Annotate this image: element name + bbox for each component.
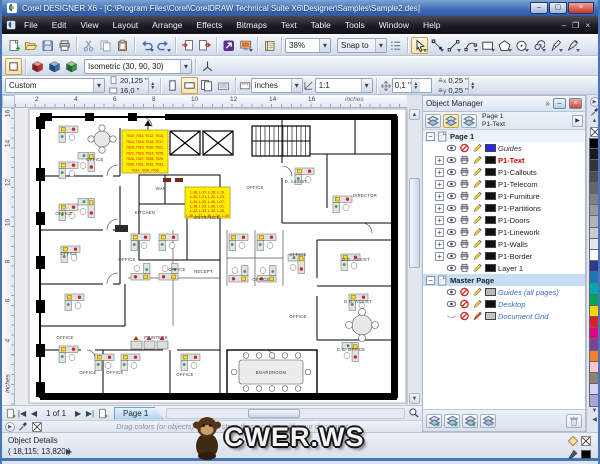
layer-row[interactable]: +P1-Walls (423, 238, 585, 250)
toolbar-separator (76, 37, 77, 53)
visibility-eye-icon[interactable] (446, 191, 457, 201)
palette-expand[interactable]: ◀ (592, 416, 597, 425)
layer-label: P1-Linework (498, 228, 540, 237)
expand-toggle[interactable]: + (435, 228, 444, 237)
layer-row[interactable]: −Page 1 (423, 130, 585, 142)
docker-minimize-button[interactable]: – (553, 98, 566, 109)
visibility-eye-icon[interactable] (446, 287, 457, 297)
color-swatch[interactable] (589, 138, 600, 149)
first-page-button[interactable]: |◀ (16, 407, 28, 419)
visibility-eye-icon[interactable] (446, 155, 457, 165)
layer-row[interactable]: +P1-Furniture (423, 190, 585, 202)
layer-row[interactable]: +P1-Partitions (423, 202, 585, 214)
non-printable-icon[interactable] (459, 287, 470, 297)
printable-icon[interactable] (459, 167, 470, 177)
menu-edit[interactable]: Edit (45, 18, 74, 32)
printable-icon[interactable] (459, 263, 470, 273)
palette-scroll-down[interactable]: ▼ (592, 407, 598, 416)
color-swatch[interactable] (589, 205, 600, 216)
chevron-down-icon[interactable]: ▾ (361, 79, 372, 92)
visibility-eye-icon[interactable] (446, 251, 457, 261)
vertical-ruler[interactable]: 16141210864inches (2, 108, 15, 405)
redo-button[interactable] (155, 37, 172, 54)
palette-eyedropper-icon[interactable] (590, 107, 600, 117)
layer-row[interactable]: Document Grid (423, 310, 585, 322)
duplicate-spinner[interactable]: ▲▼ (468, 77, 477, 94)
toolbar-separator (281, 37, 282, 53)
chevron-down-icon[interactable]: ▾ (93, 79, 104, 92)
projection-preset-select[interactable]: Isometric (30, 90, 30)▾ (84, 59, 192, 74)
color-swatch[interactable] (589, 373, 600, 384)
polygon-tool[interactable] (496, 37, 513, 54)
expand-toggle[interactable]: − (426, 276, 435, 285)
new-layer-button[interactable] (426, 414, 442, 428)
color-swatch[interactable] (589, 228, 600, 239)
copy-button[interactable] (97, 37, 114, 54)
layer-color-swatch[interactable] (485, 312, 496, 320)
non-printable-icon[interactable] (459, 143, 470, 153)
nudge-spinner[interactable]: ▲▼ (411, 79, 420, 92)
docker-header: Page 1P1-Text▶ (423, 112, 585, 130)
zoom-tool-button[interactable] (408, 407, 420, 419)
units-value: inches (255, 81, 291, 90)
chevron-down-icon[interactable]: ▾ (180, 60, 191, 73)
ruler-tick: 6 (113, 96, 117, 103)
open-button[interactable] (22, 37, 39, 54)
drawing-canvas[interactable]: 7010, 7011, 7012, 7013,7014, 7015, 7016,… (15, 108, 407, 405)
color-swatch[interactable] (589, 239, 600, 250)
editable-pencil-icon[interactable] (472, 155, 483, 165)
save-button[interactable] (39, 37, 56, 54)
svg-text:OFFICE: OFFICE (168, 267, 185, 272)
eyedropper-icon[interactable] (18, 421, 29, 432)
layer-row[interactable]: +P1-Border (423, 250, 585, 262)
printable-icon[interactable] (459, 215, 470, 225)
ellipse-tool[interactable] (513, 37, 530, 54)
ruler-tick: 8 (5, 257, 12, 267)
duplicate-y-value[interactable]: 0,25 " (448, 86, 467, 95)
docker-flyout-button[interactable]: ▶ (572, 115, 583, 127)
toolbar-separator (257, 37, 258, 53)
undo-button[interactable] (138, 37, 155, 54)
editable-pencil-icon[interactable] (472, 299, 483, 309)
ruler-origin-button[interactable] (2, 95, 15, 108)
horizontal-ruler[interactable]: 246810121416inches (15, 95, 407, 108)
no-color-swatch[interactable] (32, 422, 42, 432)
horizontal-scroll-thumb[interactable] (248, 409, 300, 418)
layer-color-swatch[interactable] (485, 168, 496, 176)
svg-text:OFFICE: OFFICE (289, 252, 306, 257)
vertical-scroll-thumb[interactable] (409, 178, 420, 268)
page-preset-value: Custom (9, 81, 93, 90)
expand-toggle[interactable]: + (435, 168, 444, 177)
menu-text[interactable]: Text (274, 18, 304, 32)
printable-icon[interactable] (459, 227, 470, 237)
bezier-tool[interactable] (462, 37, 479, 54)
layer-label: P1-Walls (498, 240, 528, 249)
printable-icon[interactable] (459, 191, 470, 201)
pen-tool[interactable] (547, 37, 564, 54)
printable-icon[interactable] (459, 179, 470, 189)
editable-pencil-icon[interactable] (472, 287, 483, 297)
window-title: Corel DESIGNER X6 - [C:\Program Files\Co… (22, 4, 526, 13)
editable-pencil-icon[interactable] (472, 143, 483, 153)
svg-text:OFFICE: OFFICE (176, 372, 193, 377)
color-swatch[interactable] (589, 351, 600, 362)
cube-blue-button[interactable] (46, 58, 63, 75)
page-icon (437, 275, 448, 286)
doc-minimize-button[interactable]: – (562, 21, 566, 30)
svg-text:L-28, L-29, L-30, L-31,: L-28, L-29, L-30, L-31, (190, 205, 225, 209)
callout-lines: L-16, L-17, L-18, L-19,L-20, L-21, L-22,… (185, 187, 230, 218)
expand-toggle[interactable]: + (435, 180, 444, 189)
layer-row[interactable]: Layer 1 (423, 262, 585, 274)
visibility-eye-icon[interactable] (446, 239, 457, 249)
drawing-scale-value: 1:1 (319, 81, 361, 90)
color-swatch[interactable] (589, 384, 600, 395)
doc-restore-button[interactable]: ❒ (572, 21, 579, 30)
cube-green-button[interactable] (63, 58, 80, 75)
page-preset-select[interactable]: Custom▾ (5, 78, 105, 93)
ruler-tick: 10 (5, 218, 12, 228)
layer-label: Layer 1 (498, 264, 523, 273)
docker-chevron[interactable]: » (546, 99, 550, 108)
maximize-button[interactable]: ▢ (549, 2, 567, 14)
visibility-eye-icon[interactable] (446, 299, 457, 309)
layer-label: P1-Border (498, 252, 532, 261)
svg-text:OFFICE: OFFICE (106, 370, 123, 375)
page-tab[interactable]: Page 1 (114, 407, 163, 420)
layer-label: Master Page (450, 276, 494, 285)
editable-pencil-icon[interactable] (472, 215, 483, 225)
fill-none-swatch (581, 436, 591, 446)
color-swatch[interactable] (589, 362, 600, 373)
svg-text:OFFICE: OFFICE (60, 251, 77, 256)
editable-pencil-icon[interactable] (472, 239, 483, 249)
previous-page-button[interactable]: ◀ (28, 407, 40, 419)
chevron-down-icon[interactable]: ▾ (319, 39, 330, 52)
options-button[interactable] (387, 37, 404, 54)
svg-text:BOARDROOM: BOARDROOM (256, 370, 287, 375)
layer-color-swatch[interactable] (485, 252, 496, 260)
expand-toggle[interactable]: + (435, 156, 444, 165)
drawing-scale-select[interactable]: 1:1▾ (315, 78, 373, 93)
paste-button[interactable] (114, 37, 131, 54)
export-button[interactable] (196, 37, 213, 54)
layer-color-swatch[interactable] (485, 156, 496, 164)
non-printable-icon[interactable] (459, 299, 470, 309)
layer-color-swatch[interactable] (485, 180, 496, 188)
toolbar-separator (195, 58, 196, 74)
color-palette: ▶▲▼◀ (586, 95, 600, 432)
expand-toggle[interactable]: + (435, 240, 444, 249)
next-page-button[interactable]: ▶ (72, 407, 84, 419)
new-master-layer-even-button[interactable] (480, 414, 496, 428)
fill-icon (567, 435, 579, 447)
editable-pencil-icon[interactable] (472, 251, 483, 261)
layer-row[interactable]: +P1-Linework (423, 226, 585, 238)
editable-pencil-icon[interactable] (472, 227, 483, 237)
layer-color-swatch[interactable] (485, 288, 496, 296)
page-size-spinner[interactable]: ▲▼ (148, 77, 157, 94)
palette-flyout-button[interactable]: ▶ (590, 97, 600, 107)
layer-row[interactable]: +P1-Callouts (423, 166, 585, 178)
color-swatch[interactable] (589, 317, 600, 328)
line-tool[interactable] (445, 37, 462, 54)
print-button[interactable] (56, 37, 73, 54)
visibility-eye-icon[interactable] (446, 143, 457, 153)
delete-layer-button[interactable] (566, 414, 582, 428)
menu-window[interactable]: Window (372, 18, 416, 32)
spiral-tool[interactable] (530, 37, 547, 54)
no-color-swatch[interactable] (590, 127, 600, 137)
layer-row[interactable]: +P1-Text (423, 154, 585, 166)
menu-tools[interactable]: Tools (338, 18, 372, 32)
ruler-tick: 6 (5, 296, 12, 306)
palette-flyout-button[interactable]: ▶ (5, 422, 15, 432)
status-expand-arrow[interactable]: ▶ (66, 447, 72, 456)
printable-icon[interactable] (459, 155, 470, 165)
pick-tool[interactable] (411, 37, 428, 54)
toolbar-separator (160, 78, 161, 94)
all-pages-button[interactable] (198, 77, 215, 94)
color-swatch[interactable] (589, 194, 600, 205)
standard-toolbar: 38%▾Snap to▾ (2, 34, 598, 56)
doc-close-button[interactable]: × (585, 21, 590, 30)
import-button[interactable] (179, 37, 196, 54)
page-indicator: 1 of 1 (46, 409, 66, 418)
menu-layout[interactable]: Layout (106, 18, 146, 32)
new-button[interactable] (5, 37, 22, 54)
duplicate-x-icon: ≞x (438, 77, 447, 85)
outline-color-swatch (581, 450, 591, 459)
non-printable-icon[interactable] (459, 311, 470, 321)
svg-text:OFFICE: OFFICE (55, 211, 72, 216)
color-swatch[interactable] (589, 328, 600, 339)
svg-text:7010, 7011, 7012, 7013,: 7010, 7011, 7012, 7013, (126, 134, 164, 138)
window-controls: –▢× (530, 2, 594, 14)
menu-arrange[interactable]: Arrange (145, 18, 189, 32)
svg-text:OFFICE: OFFICE (252, 277, 269, 282)
expand-toggle[interactable]: − (426, 132, 435, 141)
page-width-value[interactable]: 20,125 " (120, 76, 148, 85)
editable-pencil-icon[interactable] (472, 179, 483, 189)
expand-toggle[interactable]: + (435, 204, 444, 213)
color-swatch[interactable] (589, 216, 600, 227)
menu-table[interactable]: Table (304, 18, 338, 32)
toolbar-separator (407, 37, 408, 53)
toolbar-separator (134, 37, 135, 53)
nudge-distance-input[interactable]: 0,1 "▲▼ (392, 78, 432, 93)
editable-pencil-icon[interactable] (472, 263, 483, 273)
svg-text:ENTRANCE: ENTRANCE (194, 215, 219, 220)
editable-pencil-icon[interactable] (472, 191, 483, 201)
add-page-start-button[interactable] (4, 407, 16, 419)
color-swatch[interactable] (589, 261, 600, 272)
page-width-icon (109, 76, 118, 85)
axes-button[interactable] (199, 58, 216, 75)
page-dimensions: 20,125 "16,0 " (109, 76, 148, 95)
menu-items: FileEditViewLayoutArrangeEffectsBitmapsT… (17, 18, 447, 32)
svg-text:OFFICE: OFFICE (118, 257, 135, 262)
app-launcher-button[interactable] (220, 37, 237, 54)
docker-close-button[interactable]: × (569, 98, 582, 109)
drawing-scale-icon (303, 80, 315, 92)
color-swatch[interactable] (589, 395, 600, 406)
duplicate-x-value[interactable]: 0,25 " (448, 76, 467, 85)
svg-text:OFFICE: OFFICE (86, 157, 103, 162)
menu-view[interactable]: View (73, 18, 105, 32)
page-height-value[interactable]: 16,0 " (120, 86, 139, 95)
color-swatch[interactable] (589, 272, 600, 283)
printable-icon[interactable] (459, 251, 470, 261)
landscape-button[interactable] (181, 77, 198, 94)
color-swatch[interactable] (589, 250, 600, 261)
layer-label: P1-Partitions (498, 204, 541, 213)
page-navigation-bar: |◀◀1 of 1▶▶|Page 1 (2, 405, 422, 420)
menu-bitmaps[interactable]: Bitmaps (229, 18, 274, 32)
svg-text:KITCHEN: KITCHEN (135, 210, 155, 215)
color-swatch[interactable] (589, 283, 600, 294)
expand-toggle[interactable]: + (435, 192, 444, 201)
rectangle-tool[interactable] (479, 37, 496, 54)
visibility-eye-icon[interactable] (446, 227, 457, 237)
svg-text:7034, 7035, 7036: 7034, 7035, 7036 (131, 168, 158, 172)
outline-color-indicator[interactable] (567, 448, 591, 460)
palette-scroll-up[interactable]: ▲ (592, 117, 598, 126)
edit-across-layers-button[interactable] (443, 114, 459, 128)
welcome-screen-button[interactable] (237, 37, 254, 54)
color-swatch[interactable] (589, 149, 600, 160)
toolbar-separator (216, 37, 217, 53)
layer-manager-view-button[interactable] (461, 114, 477, 128)
visibility-eye-icon[interactable] (446, 203, 457, 213)
scroll-down-button[interactable]: ▼ (409, 393, 420, 404)
layer-color-swatch[interactable] (485, 204, 496, 212)
svg-text:7022, 7023, 7024, 7025,: 7022, 7023, 7024, 7025, (126, 151, 164, 155)
layer-color-swatch[interactable] (485, 240, 496, 248)
snap-to-select[interactable]: Snap to▾ (337, 38, 387, 53)
portrait-button[interactable] (164, 77, 181, 94)
projection-toolbar: Isometric (30, 90, 30)▾ (2, 56, 598, 76)
close-button[interactable]: × (568, 2, 594, 14)
svg-text:OFFICE: OFFICE (79, 370, 96, 375)
chevron-down-icon[interactable]: ▾ (375, 39, 386, 52)
last-page-button[interactable]: ▶| (84, 407, 96, 419)
color-swatch[interactable] (589, 160, 600, 171)
svg-text:DIRECTOR: DIRECTOR (353, 193, 377, 198)
minimize-button[interactable]: – (530, 2, 548, 14)
fill-color-indicator[interactable] (567, 435, 591, 447)
units-select[interactable]: inches▾ (251, 78, 303, 93)
layer-label: Document Grid (498, 312, 548, 321)
menu-effects[interactable]: Effects (189, 18, 229, 32)
printable-icon[interactable] (459, 203, 470, 213)
expand-toggle[interactable]: + (435, 252, 444, 261)
cut-button[interactable] (80, 37, 97, 54)
ruler-tick: 4 (5, 336, 12, 346)
expand-toggle[interactable]: + (435, 216, 444, 225)
outline-pen-icon (567, 448, 579, 460)
color-swatch[interactable] (589, 172, 600, 183)
cube-red-button[interactable] (29, 58, 46, 75)
layer-color-swatch[interactable] (485, 228, 496, 236)
ruler-tick: 14 (5, 139, 12, 149)
svg-text:7030, 7031, 7032, 7033,: 7030, 7031, 7032, 7033, (126, 163, 164, 167)
scroll-up-button[interactable]: ▲ (409, 109, 420, 120)
no-projection-button[interactable] (5, 58, 22, 75)
ruler-tick: 14 (269, 96, 276, 103)
status-coordinates: ( 18,115; 13,820 ) (8, 447, 71, 456)
svg-text:L-24, L-25, L-26, L-27,: L-24, L-25, L-26, L-27, (190, 200, 225, 204)
nudge-value: 0,1 " (395, 81, 411, 90)
shape-tool[interactable] (428, 37, 445, 54)
visibility-eye-icon[interactable] (446, 179, 457, 189)
layer-row[interactable]: Guides (423, 142, 585, 154)
editable-pencil-icon[interactable] (472, 167, 483, 177)
layer-row[interactable]: Desktop (423, 298, 585, 310)
locked-pencil-icon[interactable] (472, 311, 483, 321)
color-swatch[interactable] (589, 339, 600, 350)
color-swatch[interactable] (589, 183, 600, 194)
color-swatch[interactable] (589, 306, 600, 317)
layer-color-swatch[interactable] (485, 144, 496, 152)
svg-text:WAN: WAN (156, 186, 167, 191)
duplicate-y-icon: ≞y (438, 87, 447, 95)
ruler-tick: 4 (74, 96, 78, 103)
new-master-layer-odd-button[interactable] (462, 414, 478, 428)
svg-text:L-16, L-17, L-18, L-19,: L-16, L-17, L-18, L-19, (190, 191, 225, 195)
curve-pen-tool[interactable] (564, 37, 581, 54)
layer-color-swatch[interactable] (485, 264, 496, 272)
zoom-level-select[interactable]: 38%▾ (285, 38, 331, 53)
layer-row[interactable]: +P1-Doors (423, 214, 585, 226)
active-layer-label: P1-Text (482, 121, 570, 129)
layer-row[interactable]: −Master Page (423, 274, 585, 286)
add-page-end-button[interactable] (96, 407, 108, 419)
visibility-eye-icon[interactable] (446, 263, 457, 273)
menu-help[interactable]: Help (416, 18, 447, 32)
visibility-eye-icon[interactable] (446, 215, 457, 225)
show-object-properties-button[interactable] (425, 114, 441, 128)
ruler-tick: 12 (5, 178, 12, 188)
menu-file[interactable]: File (17, 18, 45, 32)
layer-color-swatch[interactable] (485, 216, 496, 224)
app-icon (6, 2, 18, 14)
duplicate-distance: ≞x0,25 "≞y0,25 " (438, 76, 468, 95)
layer-row[interactable]: Guides (all pages) (423, 286, 585, 298)
vertical-scrollbar[interactable]: ▲ ▼ (407, 108, 420, 405)
svg-text:D. ASSIST: D. ASSIST (285, 179, 308, 184)
horizontal-scrollbar[interactable] (166, 408, 405, 419)
current-page-button[interactable] (215, 77, 232, 94)
title-bar: Corel DESIGNER X6 - [C:\Program Files\Co… (2, 0, 598, 16)
visibility-eye-icon[interactable] (446, 167, 457, 177)
layer-row[interactable]: +P1-Telecom (423, 178, 585, 190)
corel-guide-button[interactable] (261, 37, 278, 54)
visibility-eye-icon[interactable] (446, 311, 457, 321)
object-manager-docker: Object Manager » – × Page 1P1-Text▶ −Pag… (422, 95, 586, 432)
chevron-down-icon[interactable]: ▾ (291, 79, 302, 92)
color-swatch[interactable] (589, 295, 600, 306)
layer-label: Guides (all pages) (498, 288, 559, 297)
printable-icon[interactable] (459, 239, 470, 249)
editable-pencil-icon[interactable] (472, 203, 483, 213)
ruler-tick: 16 (5, 109, 12, 119)
layer-color-swatch[interactable] (485, 192, 496, 200)
layer-color-swatch[interactable] (485, 300, 496, 308)
new-master-layer-button[interactable] (444, 414, 460, 428)
